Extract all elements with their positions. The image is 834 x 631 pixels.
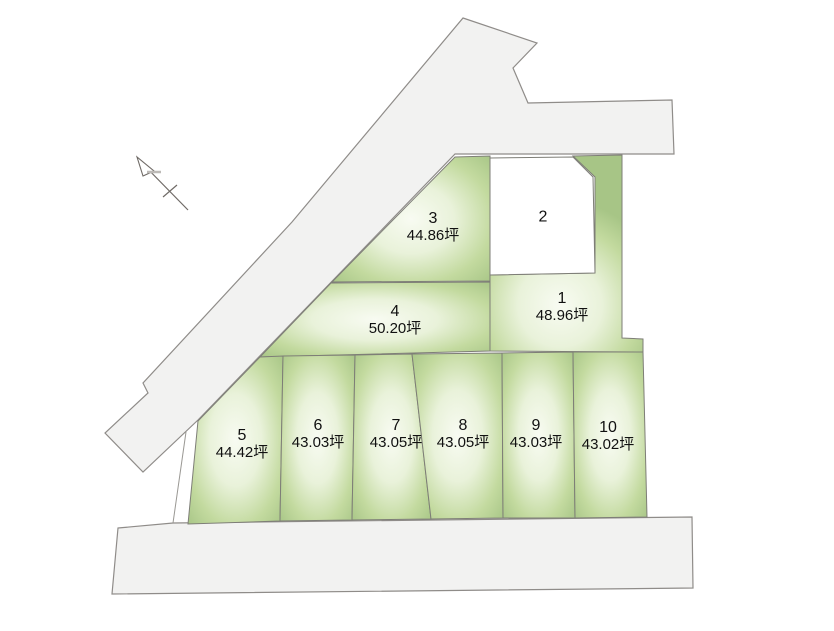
parcel-9-shape: [502, 352, 575, 518]
parcel-10-shape: [573, 352, 647, 518]
parcel-6-shape: [280, 355, 355, 521]
parcel-map: 1 48.96坪 2 3 44.86坪 4 50.20坪 5 44.42坪 6 …: [0, 0, 834, 631]
road-bottom: [112, 517, 693, 594]
boundary-line: [173, 432, 186, 523]
north-arrow-icon: [137, 157, 188, 210]
parcel-2-shape: [490, 157, 595, 275]
parcel-map-canvas: [0, 0, 834, 631]
